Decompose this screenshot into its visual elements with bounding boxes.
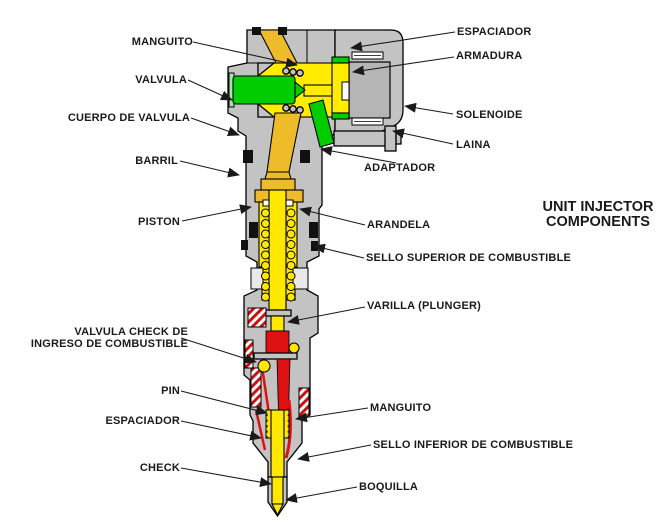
leader-sello-superior — [314, 246, 364, 258]
leader-check — [181, 468, 271, 484]
label-piston: PISTON — [138, 216, 180, 228]
leader-piston — [182, 207, 251, 221]
hatch-strip-left — [251, 368, 261, 407]
label-espaciador-lower: ESPACIADOR — [105, 415, 180, 427]
check-ball — [258, 360, 270, 372]
label-arandela: ARANDELA — [367, 219, 430, 231]
label-laina: LAINA — [456, 139, 491, 151]
check-valve-red — [266, 331, 289, 353]
spacer-plate — [254, 353, 297, 359]
leader-valvula — [188, 80, 232, 100]
label-valvula-check-line2: INGRESO DE COMBUSTIBLE — [31, 338, 188, 350]
needle-upper — [271, 410, 284, 477]
label-armadura: ARMADURA — [456, 50, 522, 62]
leader-espaciador-lower — [181, 421, 261, 438]
diagram-title: UNIT INJECTOR COMPONENTS — [528, 200, 667, 230]
seal — [278, 27, 287, 35]
label-espaciador-top: ESPACIADOR — [457, 26, 532, 38]
needle-lower — [272, 477, 283, 504]
label-barril: BARRIL — [135, 155, 178, 167]
armature-green-top — [332, 57, 349, 63]
armature-green-bottom — [332, 113, 349, 119]
label-valvula: VALVULA — [135, 74, 187, 86]
leader-laina — [393, 131, 453, 144]
diagram-title-line1: UNIT INJECTOR — [528, 200, 667, 215]
seal — [252, 27, 261, 35]
label-check: CHECK — [140, 462, 180, 474]
shim-bolt-head — [385, 126, 396, 151]
hatch-strip-left2 — [245, 340, 253, 368]
seal — [243, 150, 253, 163]
plunger — [269, 190, 286, 312]
label-valvula-check: VALVULA CHECK DE INGRESO DE COMBUSTIBLE — [31, 326, 188, 350]
label-cuerpo-de-valvula: CUERPO DE VALVULA — [68, 112, 190, 124]
label-valvula-check-line1: VALVULA CHECK DE — [31, 326, 188, 338]
shim-bolt — [334, 131, 386, 146]
shim-bolt-tip — [396, 133, 401, 144]
leader-solenoide — [405, 106, 453, 114]
label-sello-superior: SELLO SUPERIOR DE COMBUSTIBLE — [366, 252, 571, 264]
label-sello-inferior: SELLO INFERIOR DE COMBUSTIBLE — [373, 439, 573, 451]
leader-cuerpo-de-valvula — [191, 118, 239, 135]
plunger-collar — [264, 310, 291, 316]
leader-boquilla — [286, 487, 357, 500]
unit-injector-diagram-page: MANGUITO VALVULA CUERPO DE VALVULA BARRI… — [0, 0, 667, 524]
label-manguito-top: MANGUITO — [132, 36, 193, 48]
armature-pin — [342, 82, 349, 100]
seal — [309, 222, 318, 238]
label-varilla: VARILLA (PLUNGER) — [367, 300, 481, 312]
check-ball-small — [289, 343, 299, 353]
piston-neck — [265, 172, 291, 179]
hatch-strip-right — [299, 388, 309, 417]
seal — [300, 150, 310, 163]
solenoid-core — [349, 62, 390, 118]
label-boquilla: BOQUILLA — [359, 481, 418, 493]
label-pin: PIN — [161, 385, 180, 397]
piston-cap — [261, 179, 295, 191]
plunger-lower — [271, 316, 284, 331]
leader-sello-inferior — [298, 445, 371, 459]
valve — [233, 76, 295, 104]
upper-fuel-seal-left — [241, 240, 248, 250]
label-solenoide: SOLENOIDE — [456, 109, 523, 121]
diagram-title-line2: COMPONENTS — [528, 215, 667, 230]
leader-barril — [180, 161, 239, 175]
label-manguito-lower: MANGUITO — [370, 402, 431, 414]
inlet-hatch — [248, 308, 266, 327]
label-adaptador: ADAPTADOR — [364, 162, 435, 174]
seal — [249, 222, 258, 238]
